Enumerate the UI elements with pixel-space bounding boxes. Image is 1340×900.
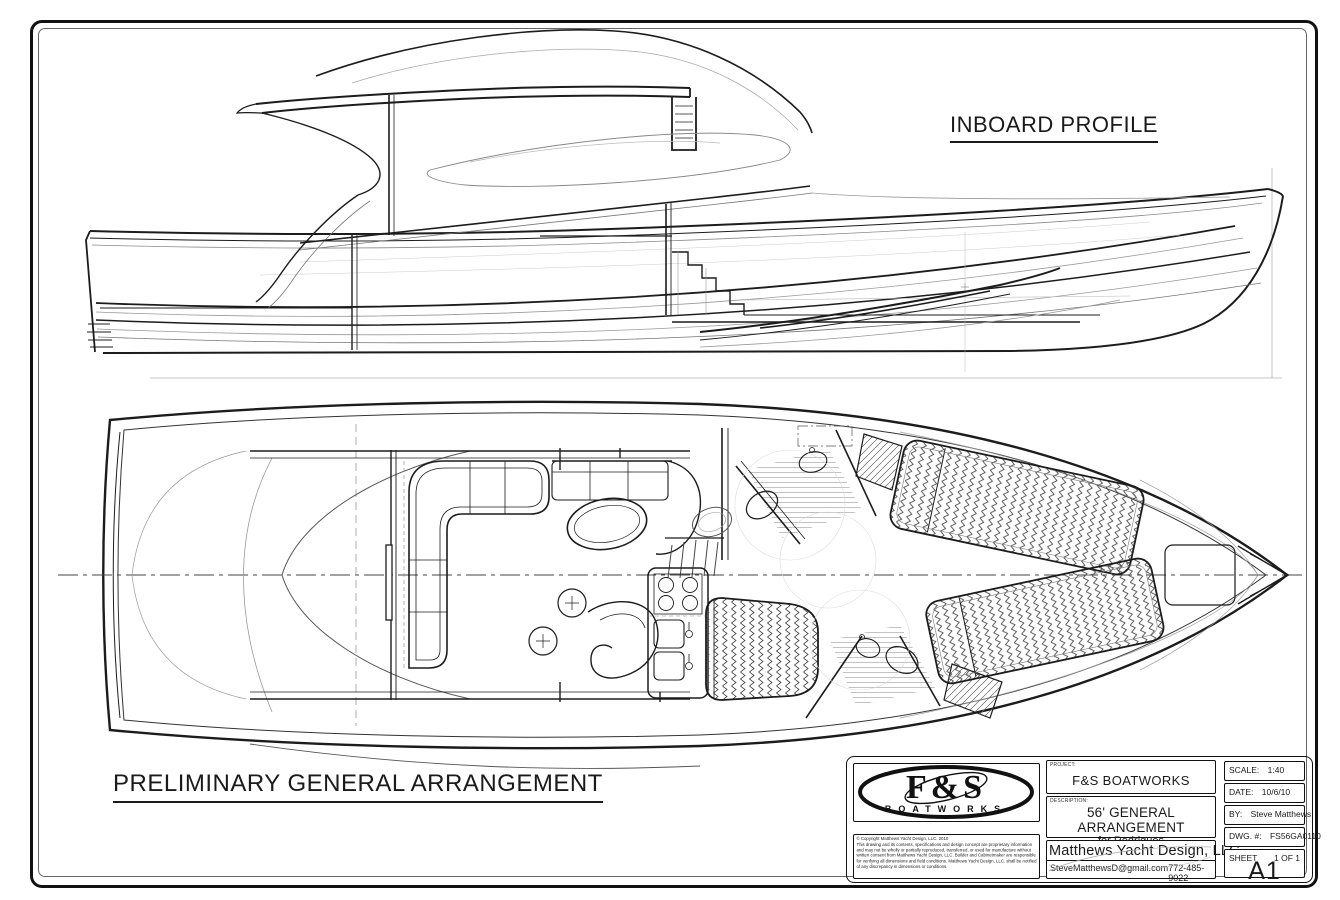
fs-boatworks-logo-icon: F&S BOATWORKS — [854, 764, 1038, 820]
sheet-field: SHEET 1 OF 1 A1 — [1224, 849, 1305, 878]
plan-port-head — [735, 426, 902, 560]
project-label: PROJECT: — [1050, 762, 1076, 768]
description-field: DESCRIPTION: 56' GENERAL ARRANGEMENT for… — [1046, 796, 1216, 838]
dwg-number-field: DWG. #: FS56GA0110 — [1224, 827, 1305, 847]
plan-vberth-starboard — [924, 556, 1166, 686]
copyright-body: This drawing and its contents, specifica… — [856, 843, 1040, 870]
description-label: DESCRIPTION: — [1050, 798, 1088, 804]
copyright-line1: © Copyright Matthews Yacht Design, LLC. … — [856, 837, 1040, 842]
project-name: F&S BOATWORKS — [1047, 773, 1215, 788]
date-label: DATE: — [1229, 787, 1253, 797]
plan-view-title: PRELIMINARY GENERAL ARRANGEMENT — [113, 770, 603, 803]
company-logo: F&S BOATWORKS — [853, 763, 1040, 822]
inboard-profile-drawing — [86, 30, 1283, 378]
date-field: DATE: 10/6/10 — [1224, 783, 1305, 803]
scale-value: 1:40 — [1268, 765, 1285, 775]
dwg-value: FS56GA0110 — [1270, 831, 1321, 841]
logo-text: F&S — [906, 769, 986, 806]
copyright-notice: © Copyright Matthews Yacht Design, LLC. … — [853, 834, 1040, 879]
date-value: 10/6/10 — [1262, 787, 1290, 797]
by-field: BY: Steve Matthews — [1224, 805, 1305, 825]
plan-galley — [648, 568, 708, 698]
plan-mid-berth — [706, 598, 818, 700]
dwg-label: DWG. #: — [1229, 831, 1262, 841]
by-value: Steve Matthews — [1251, 809, 1311, 819]
general-arrangement-plan — [58, 402, 1304, 769]
company-box-sketch-lines — [1047, 841, 1214, 877]
plan-salon-furniture — [404, 461, 735, 678]
profile-hull — [86, 189, 1283, 353]
drawing-sheet: INBOARD PROFILE PRELIMINARY GENERAL ARRA… — [0, 0, 1340, 900]
logo-subtext: BOATWORKS — [885, 804, 1007, 814]
plan-salon-bulkheads — [386, 428, 728, 702]
by-label: BY: — [1229, 809, 1242, 819]
scale-label: SCALE: — [1229, 765, 1259, 775]
scale-field: SCALE: 1:40 — [1224, 761, 1305, 781]
profile-view-title: INBOARD PROFILE — [950, 112, 1158, 143]
description-title: 56' GENERAL ARRANGEMENT — [1047, 805, 1215, 835]
company-field: Matthews Yacht Design, LLC. SteveMatthew… — [1046, 840, 1216, 879]
project-field: PROJECT: F&S BOATWORKS — [1046, 760, 1216, 794]
